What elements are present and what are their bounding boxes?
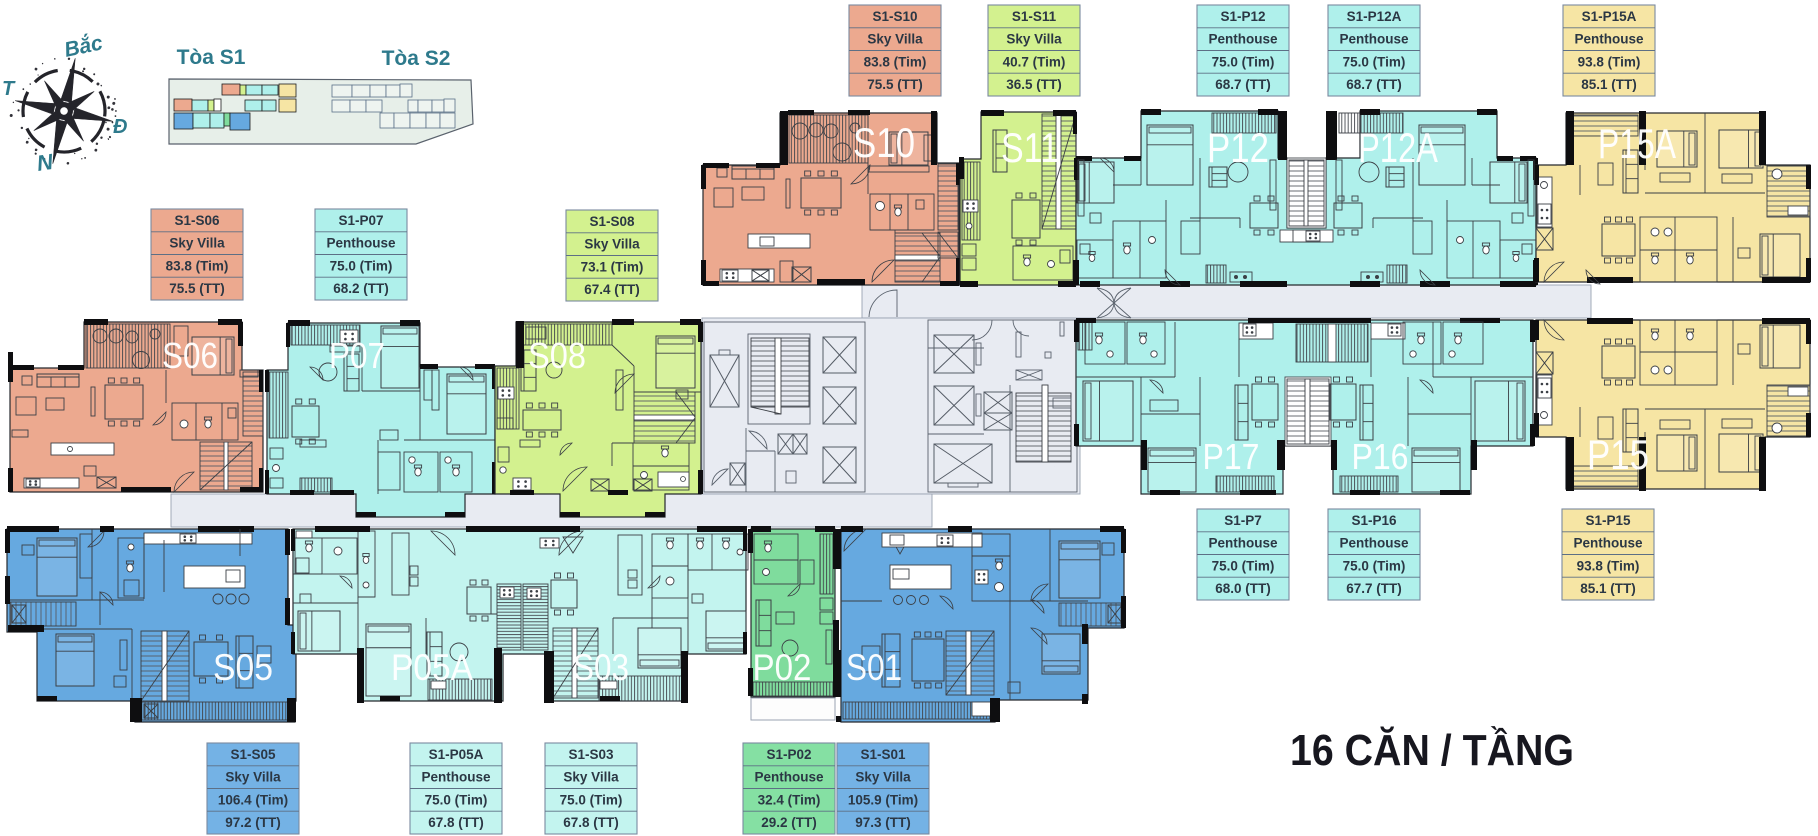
svg-text:S1-S05: S1-S05 xyxy=(230,747,276,762)
svg-text:S01: S01 xyxy=(846,647,902,688)
svg-text:106.4 (Tim): 106.4 (Tim) xyxy=(218,792,288,807)
svg-text:75.5 (TT): 75.5 (TT) xyxy=(169,281,225,296)
svg-text:75.0 (Tim): 75.0 (Tim) xyxy=(330,258,393,273)
svg-text:93.8 (Tim): 93.8 (Tim) xyxy=(1578,54,1641,69)
svg-text:75.0 (Tim): 75.0 (Tim) xyxy=(1212,54,1275,69)
svg-text:P16: P16 xyxy=(1352,436,1409,477)
svg-text:Penthouse: Penthouse xyxy=(1208,536,1278,551)
svg-text:P12: P12 xyxy=(1207,124,1269,171)
svg-text:S1-S08: S1-S08 xyxy=(589,214,635,229)
svg-text:Penthouse: Penthouse xyxy=(754,770,824,785)
svg-text:67.4 (TT): 67.4 (TT) xyxy=(584,282,640,297)
svg-text:P12A: P12A xyxy=(1358,124,1438,171)
svg-text:67.7 (TT): 67.7 (TT) xyxy=(1346,581,1402,596)
svg-text:S1-P12: S1-P12 xyxy=(1220,9,1265,24)
svg-text:29.2 (TT): 29.2 (TT) xyxy=(761,815,817,830)
svg-text:Penthouse: Penthouse xyxy=(421,770,491,785)
svg-text:Sky Villa: Sky Villa xyxy=(169,236,225,251)
svg-text:75.0 (Tim): 75.0 (Tim) xyxy=(425,792,488,807)
svg-text:Sky Villa: Sky Villa xyxy=(1006,32,1062,47)
svg-text:S05: S05 xyxy=(213,647,273,688)
svg-text:Penthouse: Penthouse xyxy=(326,236,396,251)
svg-text:P05A: P05A xyxy=(391,647,473,688)
svg-text:68.2 (TT): 68.2 (TT) xyxy=(333,281,389,296)
svg-text:S1-S10: S1-S10 xyxy=(872,9,917,24)
svg-text:Đ: Đ xyxy=(113,116,127,138)
svg-text:S1-S11: S1-S11 xyxy=(1012,9,1057,24)
svg-text:S08: S08 xyxy=(528,335,586,376)
svg-text:105.9 (Tim): 105.9 (Tim) xyxy=(848,792,918,807)
svg-text:P15A: P15A xyxy=(1598,120,1676,167)
svg-text:Sky Villa: Sky Villa xyxy=(584,237,640,252)
svg-text:75.0 (Tim): 75.0 (Tim) xyxy=(1212,558,1275,573)
svg-text:32.4 (Tim): 32.4 (Tim) xyxy=(758,792,821,807)
svg-text:93.8 (Tim): 93.8 (Tim) xyxy=(1577,558,1640,573)
svg-text:S1-P15A: S1-P15A xyxy=(1582,9,1637,24)
svg-text:97.3 (TT): 97.3 (TT) xyxy=(855,815,911,830)
svg-text:S11: S11 xyxy=(1001,124,1059,171)
svg-text:T: T xyxy=(2,78,16,100)
svg-text:P17: P17 xyxy=(1203,436,1260,477)
svg-text:Sky Villa: Sky Villa xyxy=(225,770,281,785)
svg-text:Sky Villa: Sky Villa xyxy=(563,770,619,785)
svg-text:Penthouse: Penthouse xyxy=(1574,32,1644,47)
svg-text:S1-P02: S1-P02 xyxy=(766,747,811,762)
svg-text:S06: S06 xyxy=(162,335,218,376)
svg-text:S03: S03 xyxy=(573,647,629,688)
svg-text:P07: P07 xyxy=(329,335,385,376)
svg-text:36.5 (TT): 36.5 (TT) xyxy=(1006,77,1062,92)
svg-text:83.8 (Tim): 83.8 (Tim) xyxy=(864,54,927,69)
svg-text:P15: P15 xyxy=(1587,431,1649,478)
svg-text:S1-P16: S1-P16 xyxy=(1351,513,1397,528)
svg-text:68.7 (TT): 68.7 (TT) xyxy=(1215,77,1271,92)
svg-text:75.5 (TT): 75.5 (TT) xyxy=(867,77,923,92)
svg-text:Sky Villa: Sky Villa xyxy=(855,770,911,785)
svg-text:S10: S10 xyxy=(853,119,915,166)
svg-text:16 CĂN / TẦNG: 16 CĂN / TẦNG xyxy=(1290,725,1574,775)
svg-text:75.0 (Tim): 75.0 (Tim) xyxy=(560,792,623,807)
svg-text:75.0 (Tim): 75.0 (Tim) xyxy=(1343,558,1406,573)
svg-text:85.1 (TT): 85.1 (TT) xyxy=(1581,77,1637,92)
svg-text:S1-S03: S1-S03 xyxy=(568,747,614,762)
svg-text:S1-P07: S1-P07 xyxy=(338,213,383,228)
svg-text:67.8 (TT): 67.8 (TT) xyxy=(563,815,619,830)
svg-text:Sky Villa: Sky Villa xyxy=(867,32,923,47)
svg-text:83.8 (Tim): 83.8 (Tim) xyxy=(166,258,229,273)
svg-text:40.7 (Tim): 40.7 (Tim) xyxy=(1003,54,1066,69)
svg-text:S1-S01: S1-S01 xyxy=(860,747,906,762)
svg-text:S1-P15: S1-P15 xyxy=(1585,513,1631,528)
svg-text:S1-P7: S1-P7 xyxy=(1224,513,1262,528)
svg-text:Penthouse: Penthouse xyxy=(1339,536,1409,551)
svg-text:Tòa S1: Tòa S1 xyxy=(177,46,246,69)
svg-text:97.2 (TT): 97.2 (TT) xyxy=(225,815,281,830)
svg-text:68.0 (TT): 68.0 (TT) xyxy=(1215,581,1271,596)
svg-text:Penthouse: Penthouse xyxy=(1208,32,1278,47)
svg-text:S1-P05A: S1-P05A xyxy=(429,747,484,762)
svg-text:Tòa S2: Tòa S2 xyxy=(382,47,451,70)
svg-text:P02: P02 xyxy=(753,647,812,688)
svg-text:67.8 (TT): 67.8 (TT) xyxy=(428,815,484,830)
svg-text:S1-S06: S1-S06 xyxy=(174,213,220,228)
svg-text:75.0 (Tim): 75.0 (Tim) xyxy=(1343,54,1406,69)
svg-text:Penthouse: Penthouse xyxy=(1573,536,1643,551)
svg-text:73.1 (Tim): 73.1 (Tim) xyxy=(581,259,644,274)
svg-text:68.7 (TT): 68.7 (TT) xyxy=(1346,77,1402,92)
svg-text:S1-P12A: S1-P12A xyxy=(1347,9,1402,24)
svg-text:85.1 (TT): 85.1 (TT) xyxy=(1580,581,1636,596)
svg-text:Penthouse: Penthouse xyxy=(1339,32,1409,47)
